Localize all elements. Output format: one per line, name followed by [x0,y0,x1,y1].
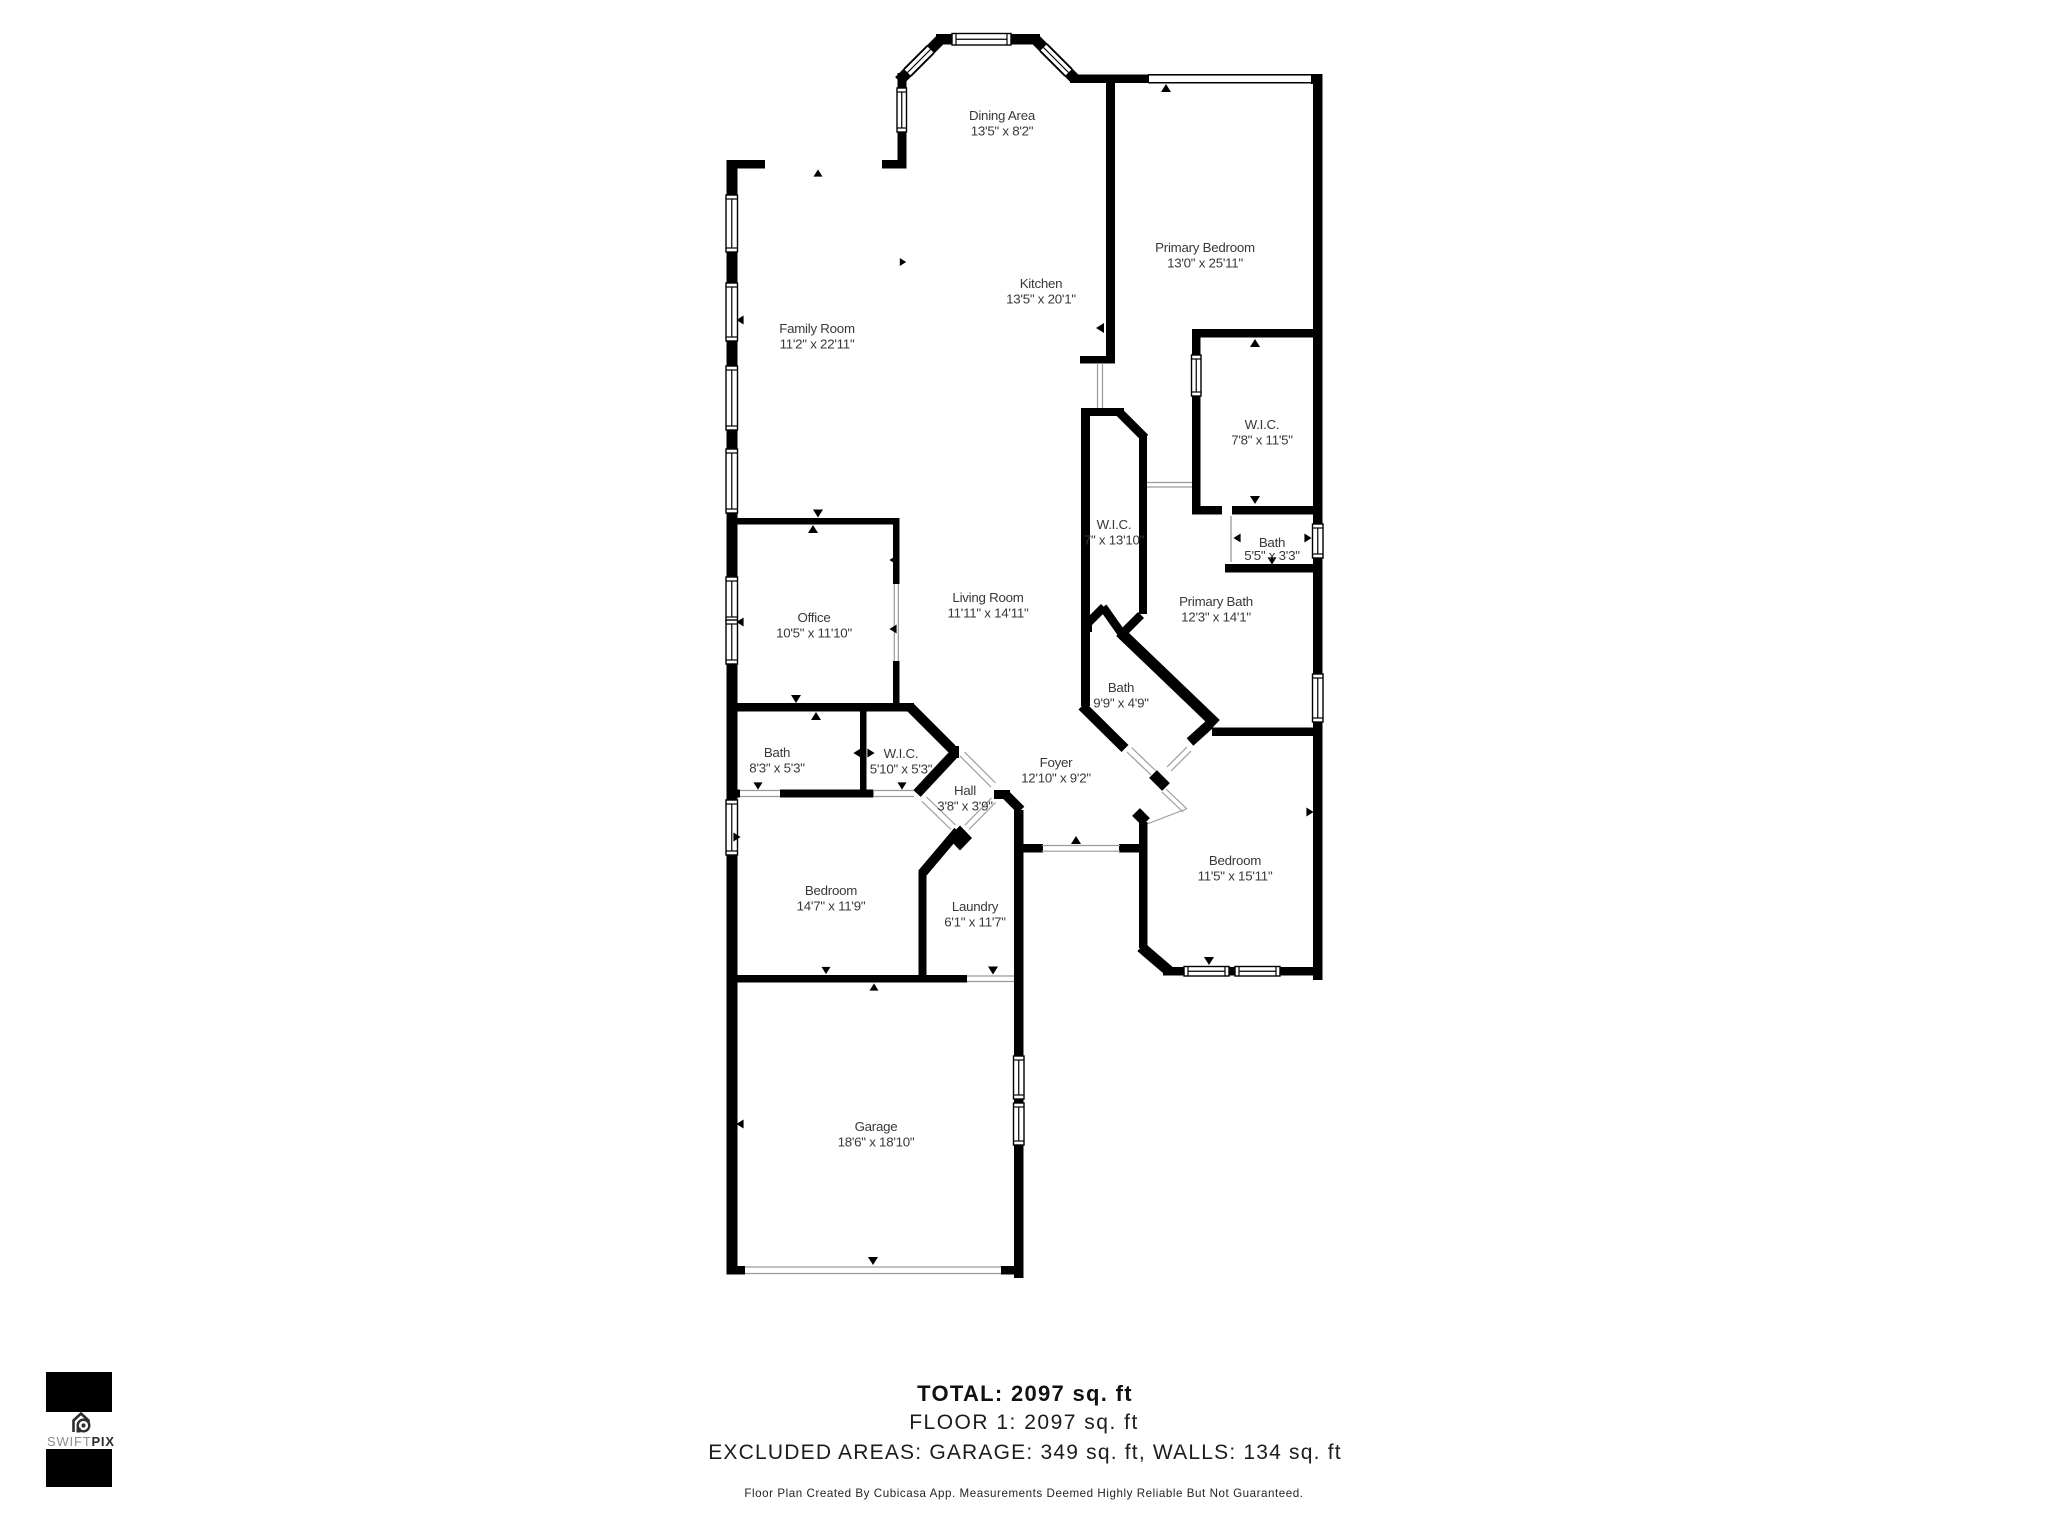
svg-text:Bath: Bath [764,745,790,760]
svg-text:5'10" x 5'3": 5'10" x 5'3" [870,762,933,777]
svg-text:9'9" x 4'9": 9'9" x 4'9" [1093,696,1149,711]
svg-text:Family Room: Family Room [779,321,855,336]
svg-text:Bedroom: Bedroom [805,883,857,898]
svg-text:SWIFTPIX: SWIFTPIX [47,1434,115,1449]
svg-text:14'7" x 11'9": 14'7" x 11'9" [797,899,866,914]
svg-text:Dining Area: Dining Area [969,108,1036,123]
svg-text:W.I.C.: W.I.C. [1097,517,1132,532]
svg-text:Office: Office [798,610,831,625]
svg-text:6'1" x 11'7": 6'1" x 11'7" [944,915,1006,930]
svg-text:W.I.C.: W.I.C. [1245,417,1280,432]
svg-text:W.I.C.: W.I.C. [884,746,919,761]
svg-text:3'8" x 3'9": 3'8" x 3'9" [937,799,993,814]
svg-text:13'5" x 8'2": 13'5" x 8'2" [971,124,1034,139]
svg-text:Kitchen: Kitchen [1020,276,1063,291]
svg-text:Laundry: Laundry [952,899,999,914]
svg-text:Garage: Garage [855,1119,898,1134]
svg-text:5'5" x 3'3": 5'5" x 3'3" [1244,548,1300,563]
svg-text:Primary Bath: Primary Bath [1179,594,1253,609]
svg-text:Bath: Bath [1108,680,1134,695]
svg-text:Bedroom: Bedroom [1209,853,1261,868]
svg-text:18'6" x 18'10": 18'6" x 18'10" [838,1135,915,1150]
svg-text:13'5" x 20'1": 13'5" x 20'1" [1006,292,1076,307]
svg-text:TOTAL: 2097 sq. ft: TOTAL: 2097 sq. ft [917,1381,1133,1406]
svg-text:Primary Bedroom: Primary Bedroom [1155,240,1255,255]
svg-text:11'2" x 22'11": 11'2" x 22'11" [780,337,855,352]
svg-text:Floor Plan Created By Cubicasa: Floor Plan Created By Cubicasa App. Meas… [744,1487,1303,1500]
svg-text:7'8" x 11'5": 7'8" x 11'5" [1231,433,1293,448]
svg-text:8'3" x 5'3": 8'3" x 5'3" [749,761,805,776]
svg-text:11'5" x 15'11": 11'5" x 15'11" [1198,869,1273,884]
svg-text:Foyer: Foyer [1040,755,1074,770]
svg-text:13'0" x 25'11": 13'0" x 25'11" [1167,256,1243,271]
svg-text:10'5" x 11'10": 10'5" x 11'10" [776,626,852,641]
svg-text:EXCLUDED AREAS: GARAGE: 349 sq: EXCLUDED AREAS: GARAGE: 349 sq. ft, WALL… [708,1441,1342,1464]
svg-text:FLOOR 1: 2097 sq. ft: FLOOR 1: 2097 sq. ft [909,1411,1139,1434]
svg-text:7" x 13'10": 7" x 13'10" [1084,533,1145,548]
svg-text:Hall: Hall [954,783,976,798]
svg-text:11'11" x 14'11": 11'11" x 14'11" [947,606,1029,621]
svg-text:Living Room: Living Room [952,590,1023,605]
svg-text:12'10" x 9'2": 12'10" x 9'2" [1021,771,1091,786]
svg-text:12'3" x 14'1": 12'3" x 14'1" [1181,610,1251,625]
